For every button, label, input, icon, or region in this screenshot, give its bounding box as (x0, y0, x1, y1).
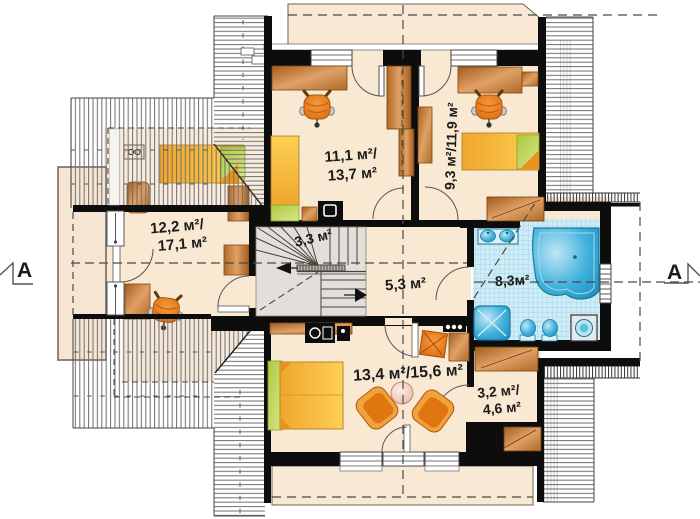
svg-text:8,3м²: 8,3м² (495, 271, 531, 289)
svg-text:5,3 м²: 5,3 м² (384, 275, 426, 295)
svg-text:9,3 м²/11,9 м²: 9,3 м²/11,9 м² (442, 102, 461, 190)
svg-text:4,6 м²: 4,6 м² (482, 398, 522, 417)
svg-text:A: A (17, 259, 32, 282)
svg-text:13,7 м²: 13,7 м² (327, 164, 378, 184)
svg-text:A: A (667, 261, 682, 284)
